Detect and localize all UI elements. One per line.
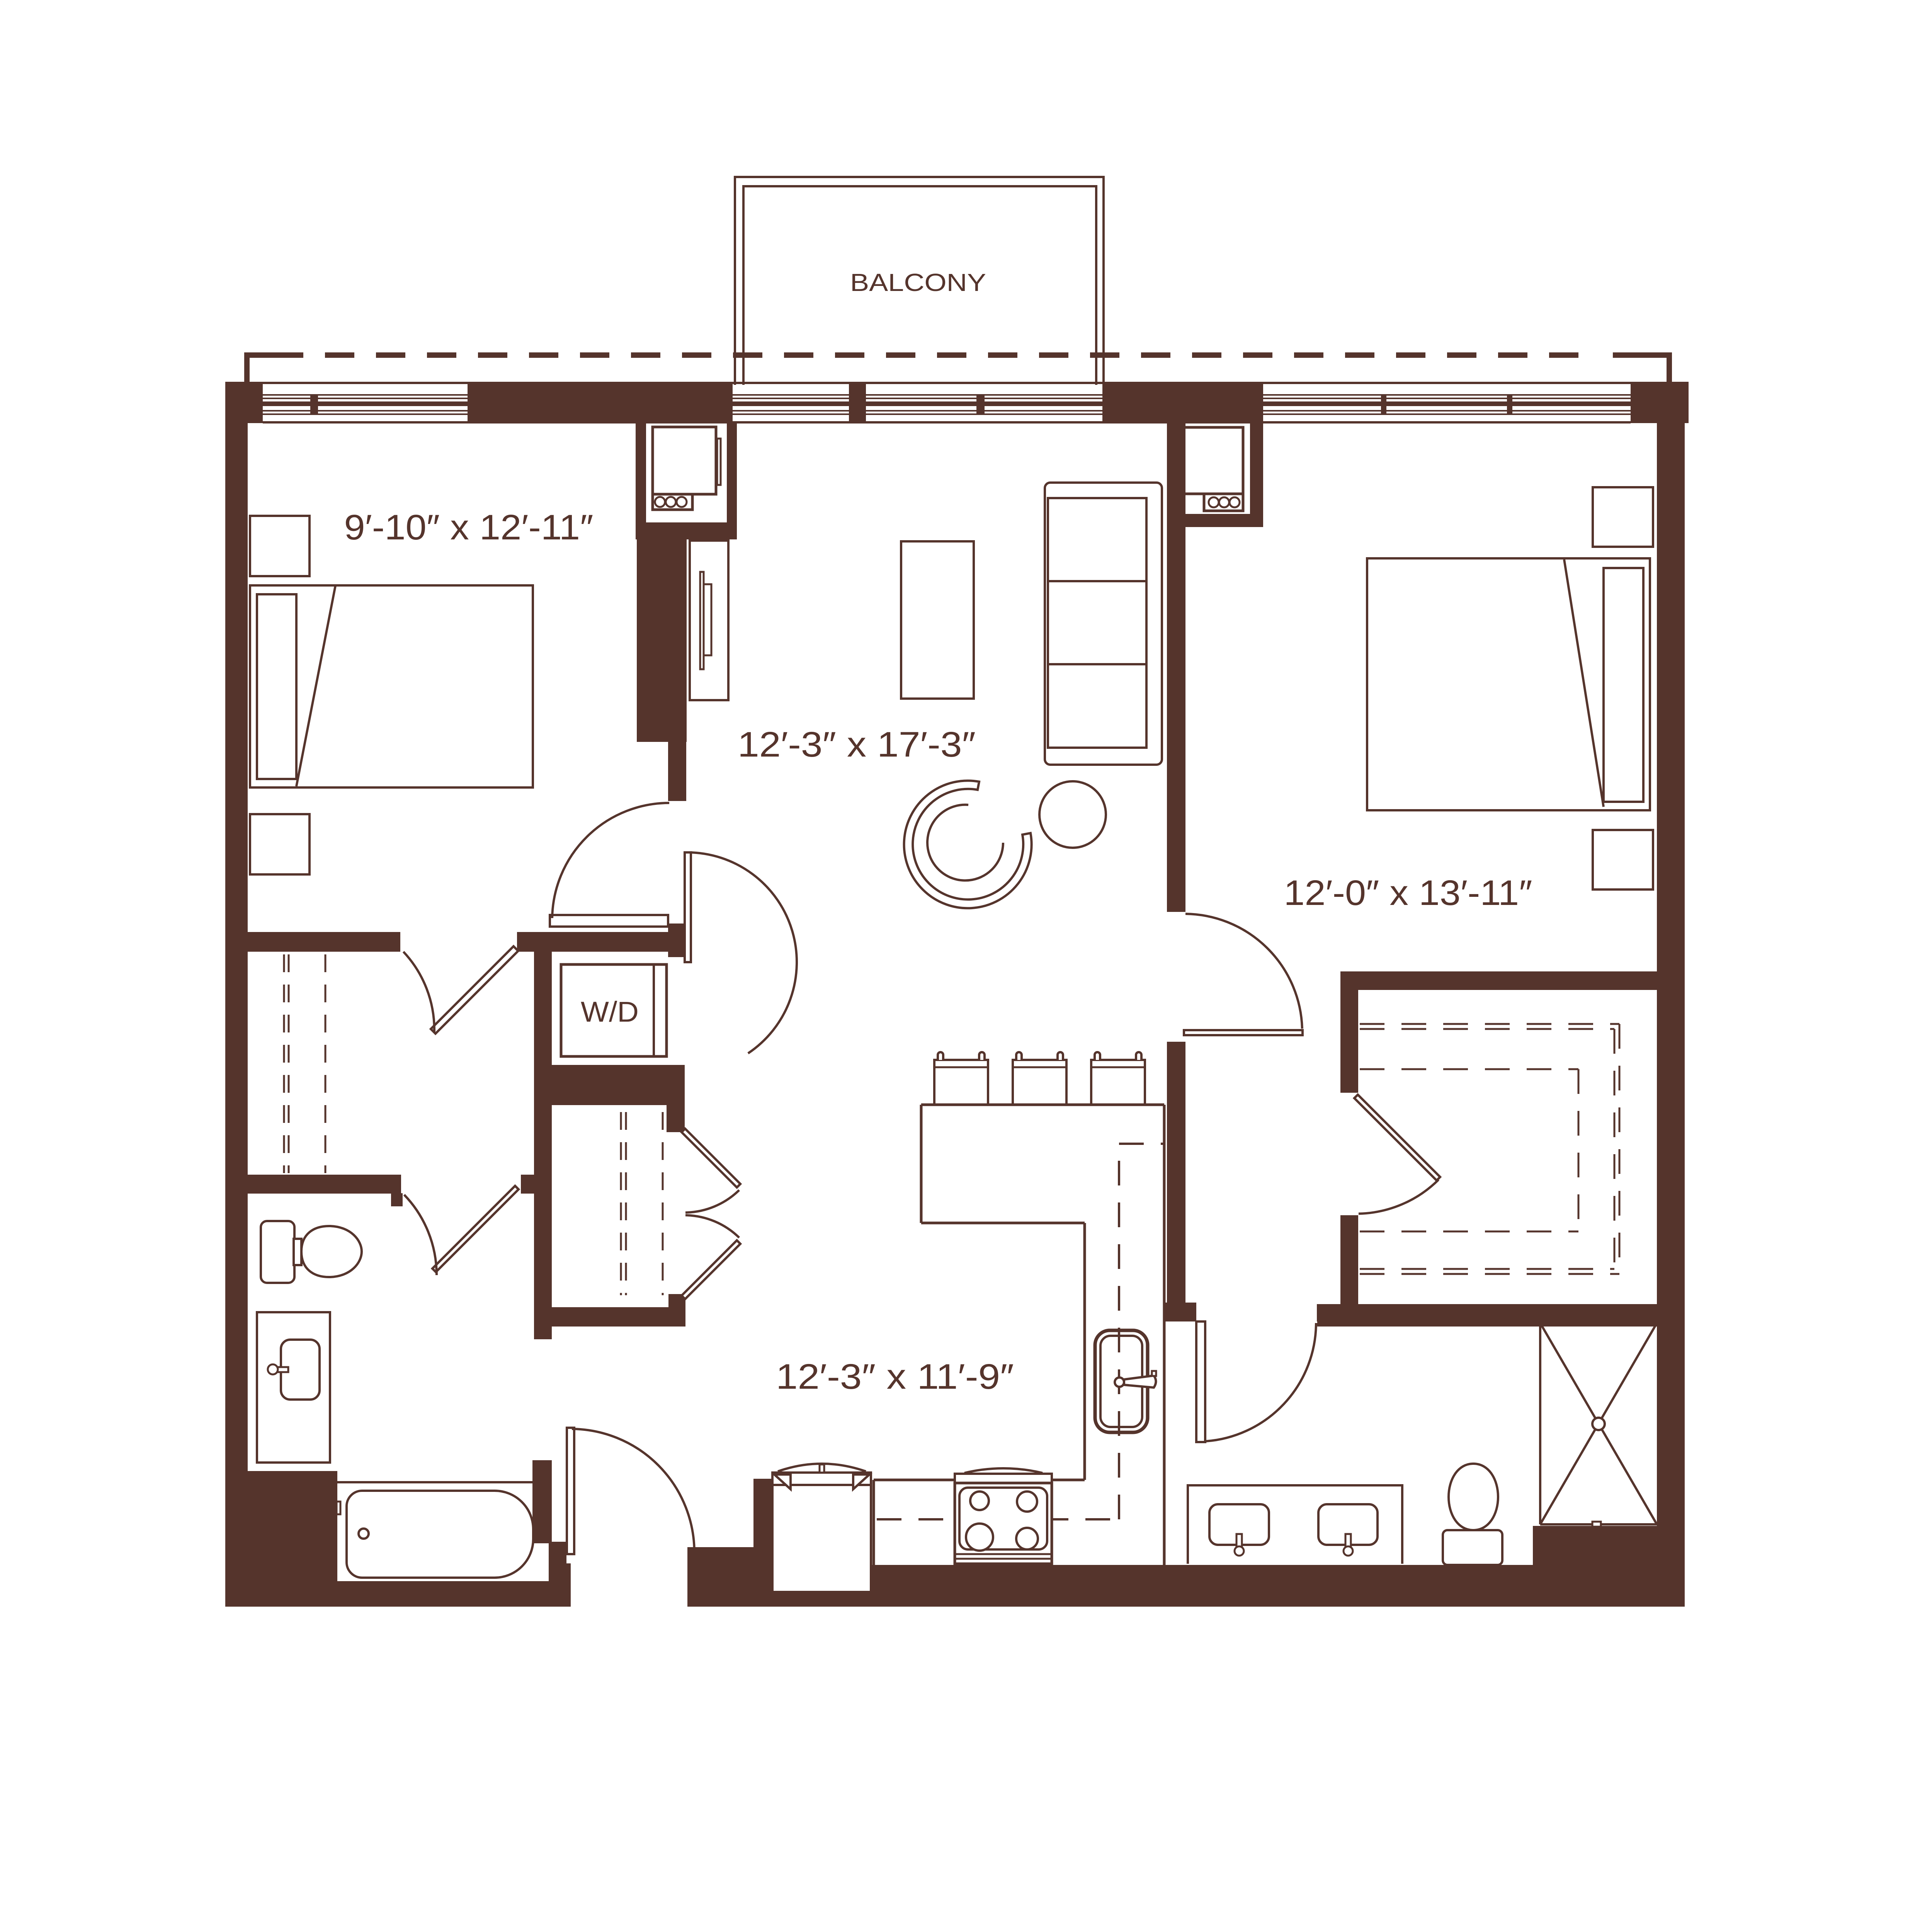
svg-text:12′-3″ x 11′-9″: 12′-3″ x 11′-9″ [776, 1357, 1014, 1396]
svg-text:12′-0″ x 13′-11″: 12′-0″ x 13′-11″ [1284, 873, 1532, 913]
svg-text:12′-3″ x 17′-3″: 12′-3″ x 17′-3″ [738, 725, 976, 764]
svg-text:9′-10″ x 12′-11″: 9′-10″ x 12′-11″ [344, 508, 594, 547]
svg-text:W/D: W/D [581, 996, 639, 1028]
svg-text:BALCONY: BALCONY [850, 269, 986, 296]
